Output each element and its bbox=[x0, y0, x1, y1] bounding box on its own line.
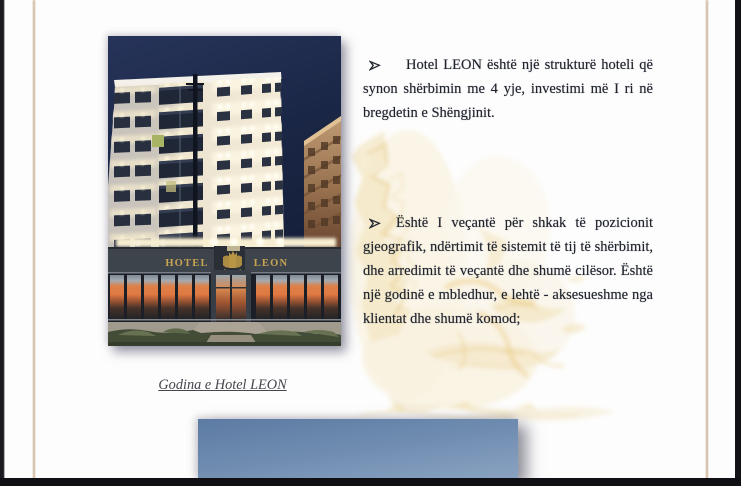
svg-text:LEON: LEON bbox=[254, 258, 289, 269]
svg-text:HOTEL: HOTEL bbox=[165, 258, 208, 269]
